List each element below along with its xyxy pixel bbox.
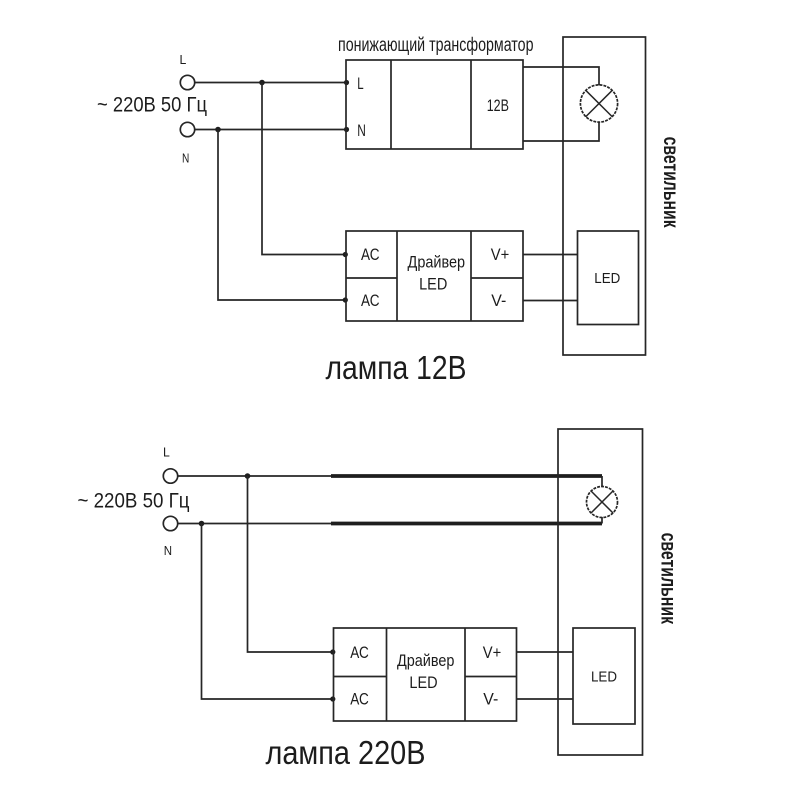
svg-text:N: N bbox=[357, 121, 366, 140]
svg-text:Драйвер: Драйвер bbox=[408, 252, 466, 271]
svg-text:L: L bbox=[163, 444, 170, 459]
svg-text:лампа 12В: лампа 12В bbox=[326, 350, 467, 387]
svg-text:АС: АС bbox=[361, 291, 380, 310]
svg-text:LED: LED bbox=[419, 275, 447, 294]
svg-text:светильник: светильник bbox=[657, 533, 680, 625]
svg-text:LED: LED bbox=[591, 669, 617, 686]
svg-text:понижающий трансформатор: понижающий трансформатор bbox=[338, 35, 534, 56]
svg-text:LED: LED bbox=[409, 673, 437, 692]
svg-text:LED: LED bbox=[594, 270, 620, 287]
svg-text:V-: V- bbox=[483, 690, 498, 709]
svg-text:N: N bbox=[164, 543, 172, 558]
svg-text:N: N bbox=[182, 151, 189, 166]
svg-text:светильник: светильник bbox=[659, 137, 682, 228]
svg-text:АС: АС bbox=[361, 245, 380, 264]
svg-text:~ 220В 50 Гц: ~ 220В 50 Гц bbox=[97, 93, 207, 117]
svg-text:V-: V- bbox=[491, 291, 506, 310]
svg-text:V+: V+ bbox=[491, 245, 510, 264]
svg-text:L: L bbox=[180, 52, 187, 67]
svg-text:АС: АС bbox=[350, 690, 369, 709]
svg-text:12В: 12В bbox=[487, 96, 509, 115]
svg-text:L: L bbox=[357, 74, 363, 93]
svg-text:V+: V+ bbox=[483, 643, 502, 662]
svg-text:~ 220В 50 Гц: ~ 220В 50 Гц bbox=[78, 489, 190, 513]
svg-text:лампа 220В: лампа 220В bbox=[266, 735, 426, 772]
svg-text:АС: АС bbox=[350, 643, 369, 662]
svg-text:Драйвер: Драйвер bbox=[397, 651, 455, 670]
